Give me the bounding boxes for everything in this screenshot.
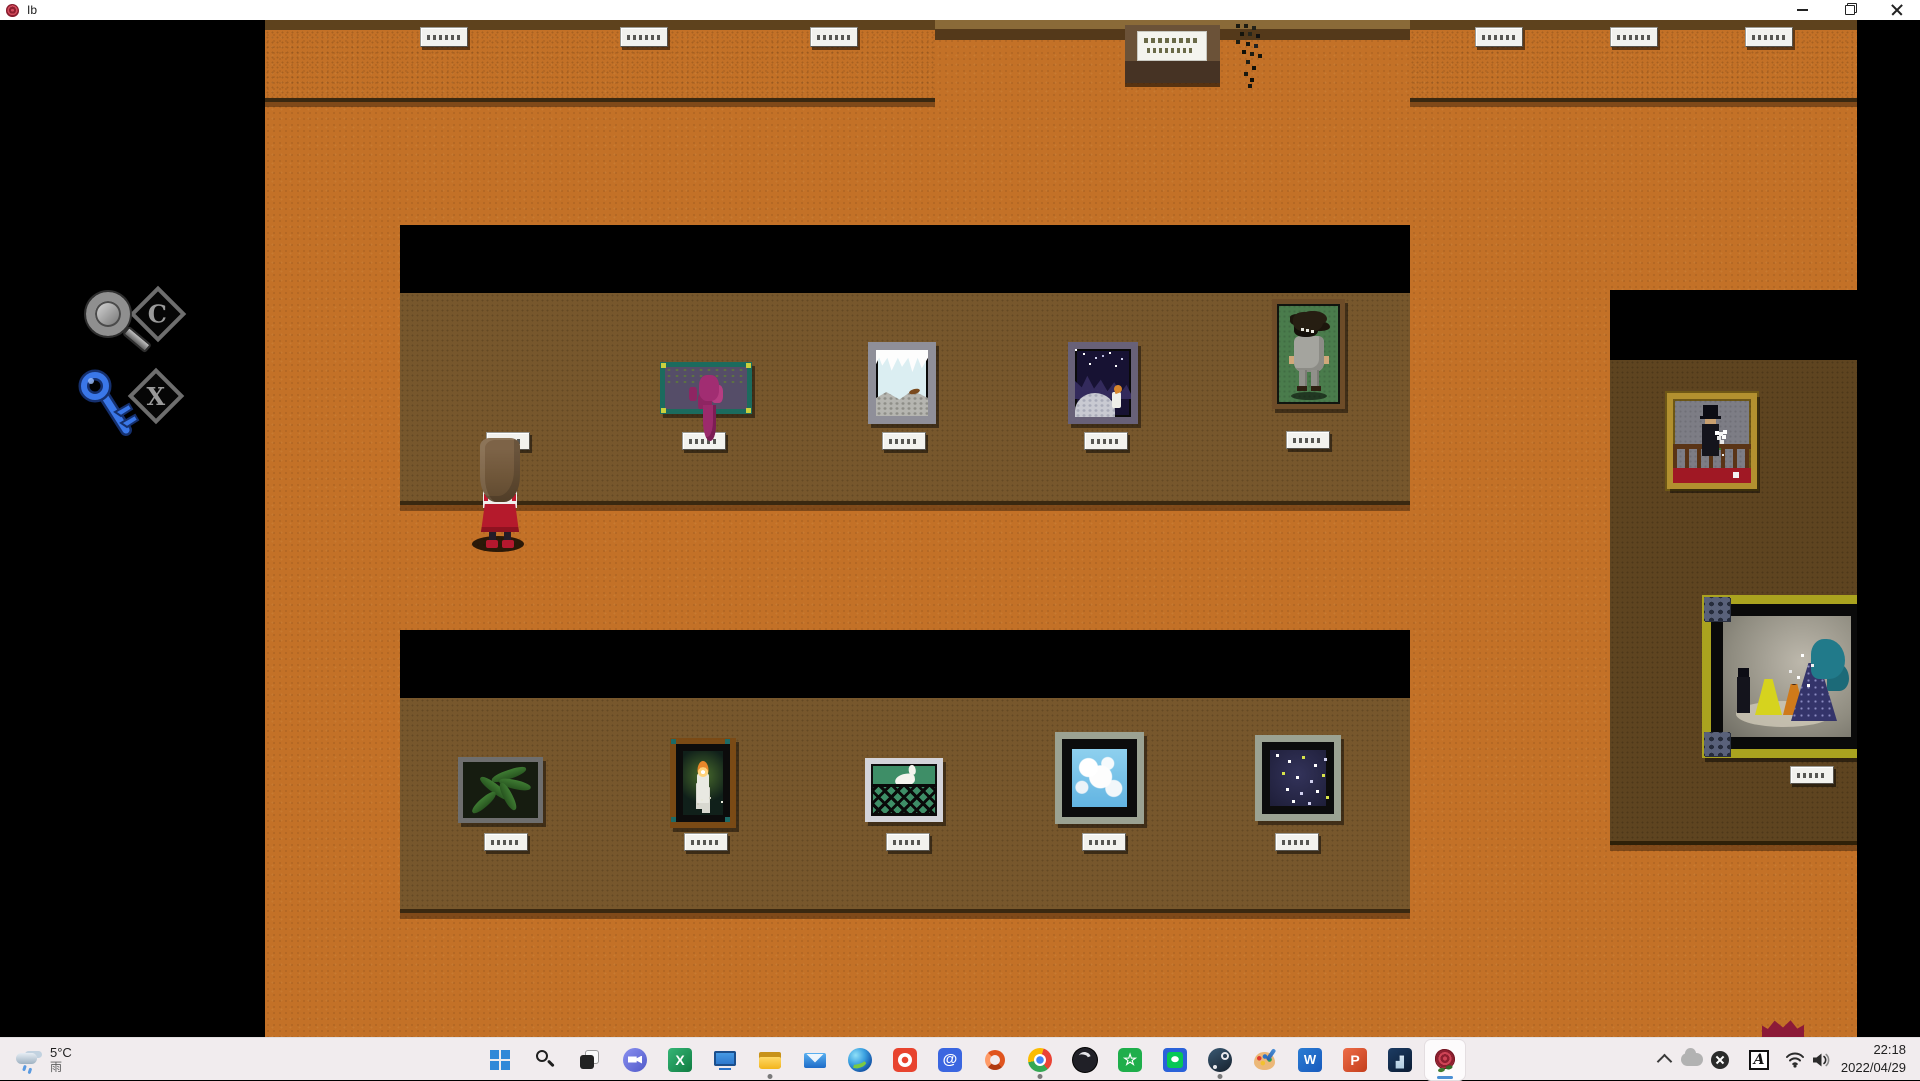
taskbar-icon-powerpoint[interactable] [1335,1040,1375,1080]
mail-icon [802,1047,828,1073]
painting-goose-fence [865,758,943,822]
x-circle-icon [1711,1051,1729,1069]
right-room-black-band [1610,290,1857,360]
weather-condition: 雨 [50,1060,72,1075]
cloud-icon [1681,1053,1703,1066]
message-board [1125,25,1220,83]
taskbar-icon-chat[interactable] [615,1040,655,1080]
map-void-right [1857,20,1920,1037]
wall-plaque [886,833,930,851]
frame-corner-plate [1704,597,1730,621]
taskbar-icon-file-explorer[interactable] [750,1040,790,1080]
painting-opera-scene [1702,595,1872,758]
weather-temperature: 5°C [50,1045,72,1060]
window-controls [1779,0,1920,20]
painting-starry-night [1255,735,1341,821]
taskbar-icon-start[interactable] [480,1040,520,1080]
edge-icon [847,1047,873,1073]
painting-canvas [463,762,538,818]
twisted-sculpture [1236,24,1240,28]
taskbar-icon-mail[interactable] [795,1040,835,1080]
task-view-icon [577,1047,603,1073]
office-icon [982,1047,1008,1073]
character-shoe [502,540,514,548]
wall-shadow [400,505,1410,511]
wall-shadow [1410,102,1857,107]
upper-gallery-black-band [400,225,1410,293]
character-hair [480,438,520,502]
wall-shadow [1610,845,1857,851]
taskbar-icon-ib-game[interactable] [1425,1040,1465,1080]
weather-widget[interactable]: 5°C 雨 [10,1042,76,1077]
character-shadow [472,536,524,552]
painting-gray-figure [1272,299,1345,409]
taskbar-app-ic [480,1039,1465,1080]
taskbar-icon-office[interactable] [975,1040,1015,1080]
paint-icon [1252,1047,1278,1073]
painting-night-candle [1068,342,1138,424]
frame-corner-plate [1704,732,1730,756]
painting-burning-candle [670,738,736,828]
painting-canvas [871,764,937,816]
character-skirt [481,504,519,532]
taskbar-icon-at-app[interactable] [930,1040,970,1080]
close-icon [1891,4,1903,16]
painting-canvas [683,751,723,815]
lower-gallery-black-band [400,630,1410,698]
taskbar-icon-monitor[interactable] [705,1040,745,1080]
wall-plaque [810,27,858,47]
onedrive-tray-icon[interactable] [1678,1038,1706,1081]
key-icon [78,368,144,444]
painting-blue-sky [1055,732,1144,824]
search-icon [532,1047,558,1073]
window-title: Ib [27,3,37,17]
painting-gentleman [1667,393,1757,489]
wall-plaque [1790,766,1834,784]
speaker-icon [1811,1052,1831,1068]
wall-plaque [882,432,926,450]
painting-snowy-ruins [868,342,936,424]
wall-plaque [1082,833,1126,851]
close-button[interactable] [1873,0,1920,20]
wall-plaque [1610,27,1658,47]
powerpoint-icon [1342,1047,1368,1073]
wall-shadow [400,913,1410,919]
wall-shadow [265,102,935,107]
player-character-ib [470,430,530,555]
taskbar-icon-chrome[interactable] [1020,1040,1060,1080]
line-icon [1162,1047,1188,1073]
hint-key-label: X [147,382,166,411]
kindle-icon [1387,1047,1413,1073]
wall-plaque [1084,432,1128,450]
word-icon [1297,1047,1323,1073]
taskbar-icon-obs[interactable] [1065,1040,1105,1080]
taskbar-icon-excel[interactable] [660,1040,700,1080]
painting-canvas [1075,349,1131,417]
file-explorer-icon [757,1047,783,1073]
wifi-tray-icon[interactable] [1782,1038,1808,1081]
taskbar-icon-search[interactable] [525,1040,565,1080]
ib-game-icon [1432,1047,1458,1073]
wall-plaque [1475,27,1523,47]
wifi-icon [1785,1051,1805,1068]
painting-canvas [1277,304,1340,404]
status-x-tray-icon[interactable] [1708,1038,1732,1081]
message-board-panel [1137,31,1207,61]
painting-canvas [876,350,928,416]
window-title-bar: Ib [0,0,1920,20]
start-icon [487,1047,513,1073]
minimize-button[interactable] [1779,0,1826,20]
ime-letter: A [1749,1050,1769,1070]
taskbar-icon-task-view[interactable] [570,1040,610,1080]
excel-icon [667,1047,693,1073]
wall-plaque [1275,833,1319,851]
minimize-icon [1797,9,1808,11]
chevron-up-icon [1656,1054,1672,1070]
rain-cloud-icon [14,1046,44,1074]
restore-button[interactable] [1826,0,1873,20]
painting-canvas [1723,616,1851,737]
wall-plaque [684,833,728,851]
taskbar-icon-edge[interactable] [840,1040,880,1080]
wall-plaque [620,27,668,47]
ime-tray-icon[interactable]: A [1746,1038,1772,1081]
painting-canvas [1276,754,1279,757]
magnifier-icon [86,292,130,336]
painting-drip [703,405,716,441]
tray-date: 2022/04/29 [1841,1059,1906,1077]
taskbar-icon-red-app[interactable] [885,1040,925,1080]
steam-icon [1207,1047,1233,1073]
taskbar-icon-star-app[interactable] [1110,1040,1150,1080]
star-app-icon [1117,1047,1143,1073]
chat-icon [622,1047,648,1073]
hint-key-label: C [148,299,167,328]
volume-tray-icon[interactable] [1808,1038,1834,1081]
wall-plaque [484,833,528,851]
taskbar: 5°C 雨 A [0,1037,1920,1080]
obs-icon [1072,1047,1098,1073]
rose-app-icon [6,4,19,17]
game-screen[interactable]: C X [0,20,1920,1037]
painting-canvas [665,367,747,409]
taskbar-icon-word[interactable] [1290,1040,1330,1080]
painting-purple-cluster [660,362,752,414]
character-shoe [486,540,498,548]
tray-clock[interactable]: 22:18 2022/04/29 [1841,1041,1906,1077]
painting-canvas [1072,749,1127,807]
tray-expand-button[interactable] [1652,1038,1676,1081]
wall-plaque [420,27,468,47]
wall-plaque [1286,431,1330,449]
wall-plaque [1745,27,1793,47]
painting-dark-leaves [458,757,543,823]
restore-icon [1845,5,1855,15]
taskbar-icon-line[interactable] [1155,1040,1195,1080]
taskbar-icon-paint[interactable] [1245,1040,1285,1080]
at-app-icon [937,1047,963,1073]
red-app-icon [892,1047,918,1073]
taskbar-icon-kindle[interactable] [1380,1040,1420,1080]
painting-canvas [1673,399,1751,483]
chrome-icon [1027,1047,1053,1073]
monitor-icon [712,1047,738,1073]
tray-time: 22:18 [1841,1041,1906,1059]
taskbar-icon-steam[interactable] [1200,1040,1240,1080]
